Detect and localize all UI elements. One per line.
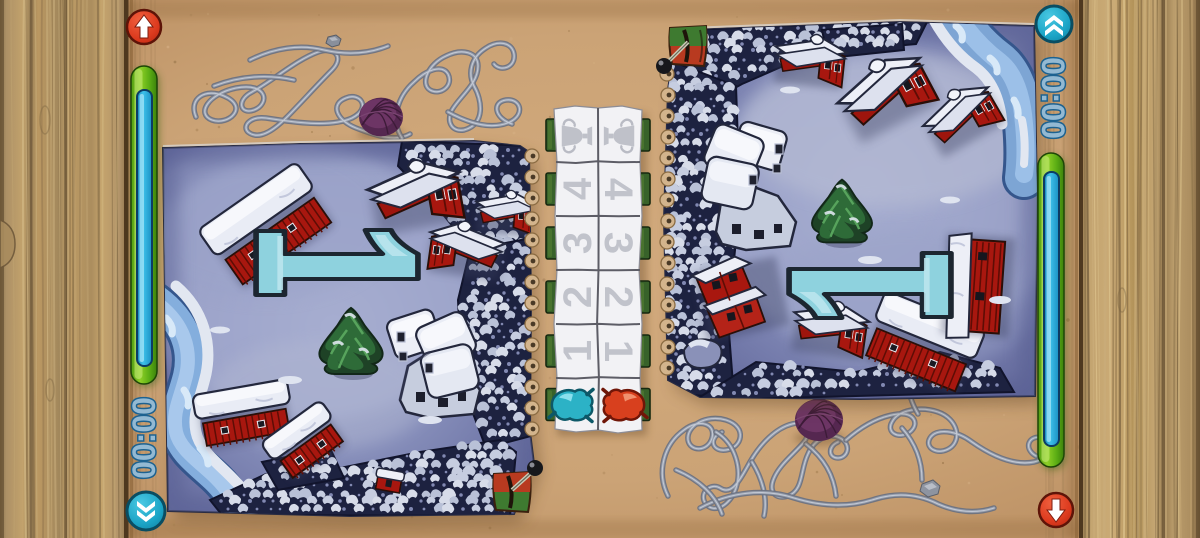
svg-text:00:00: 00:00 <box>126 397 162 479</box>
svg-text:4: 4 <box>596 178 640 201</box>
svg-text:3: 3 <box>596 232 640 254</box>
svg-text:1: 1 <box>556 340 600 362</box>
svg-text:2: 2 <box>596 286 640 308</box>
svg-text:3: 3 <box>556 232 600 254</box>
svg-text:2: 2 <box>556 286 600 308</box>
svg-text:00:00: 00:00 <box>1035 57 1071 139</box>
svg-text:1: 1 <box>596 340 640 362</box>
svg-text:4: 4 <box>556 177 600 200</box>
